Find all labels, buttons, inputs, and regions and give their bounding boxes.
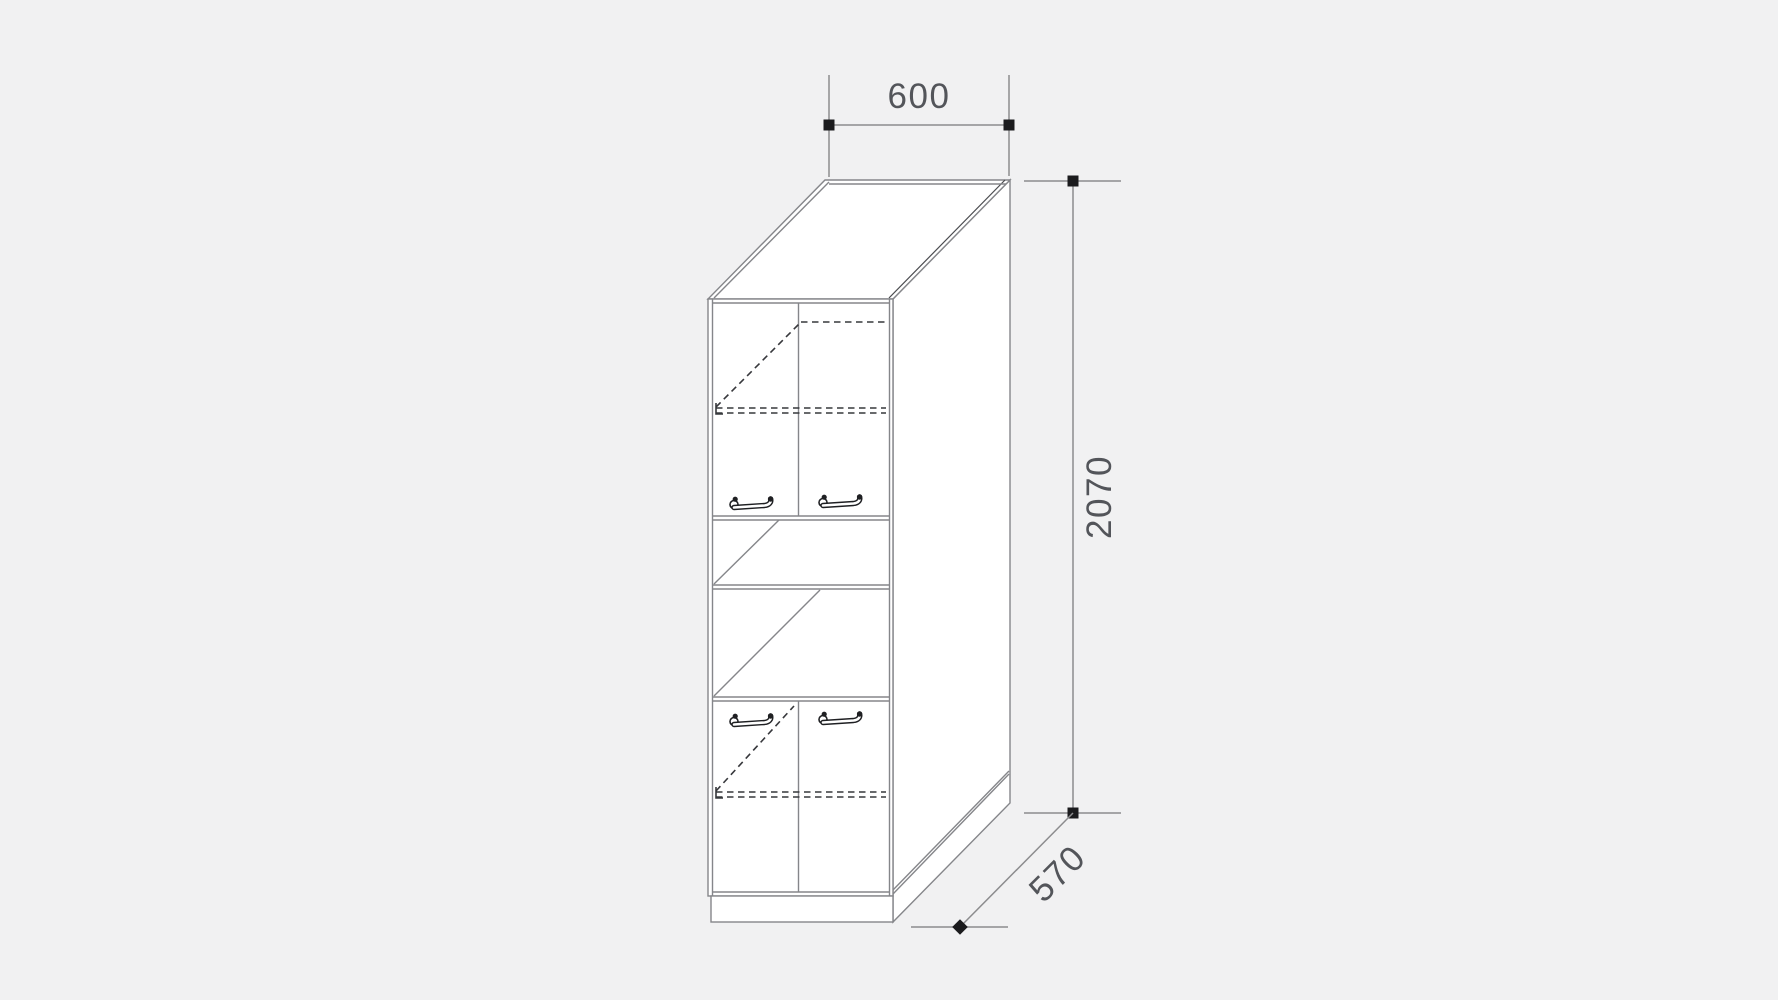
- height-dimension-label: 2070: [1082, 427, 1118, 567]
- plinth: [711, 896, 893, 922]
- dimension-marker: [1068, 176, 1079, 187]
- front-carcass: [708, 299, 893, 896]
- cabinet-side-face: [893, 180, 1010, 922]
- dimension-marker: [824, 120, 835, 131]
- cabinet-drawing: [0, 0, 1778, 1000]
- cabinet-front-face: [708, 299, 893, 922]
- technical-drawing-canvas: 600 2070 570: [0, 0, 1778, 1000]
- width-dimension-label: 600: [849, 79, 989, 115]
- side-face-panel: [893, 180, 1010, 922]
- dimension-marker: [1004, 120, 1015, 131]
